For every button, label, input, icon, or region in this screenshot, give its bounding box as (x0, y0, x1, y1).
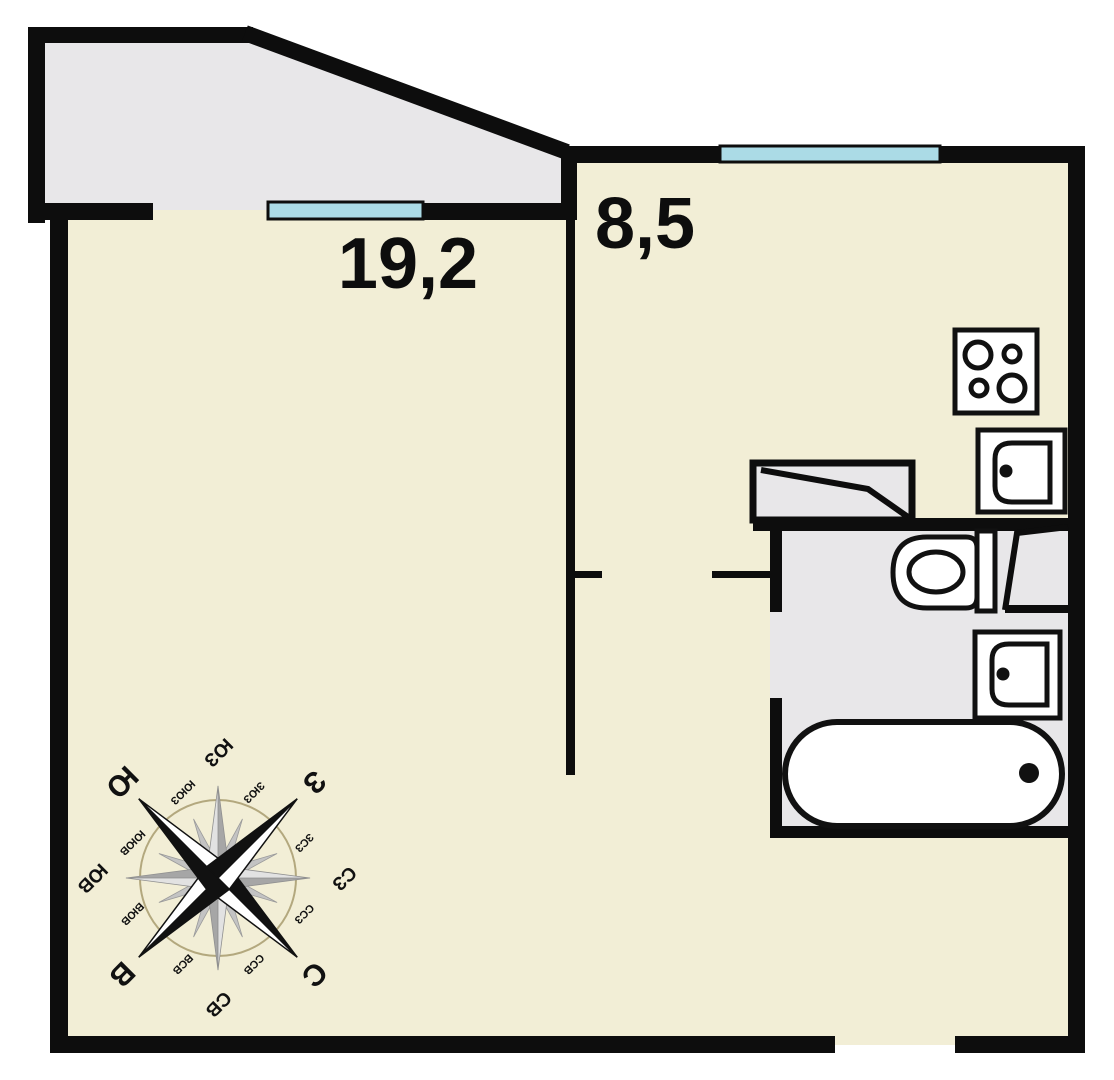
kitchen-window (720, 146, 940, 162)
drain-dot (1019, 763, 1039, 783)
floor-plan-image: 19,2 8,5 (0, 0, 1114, 1080)
burner-large-2 (999, 375, 1025, 401)
left-wall (50, 203, 68, 1053)
burner-large-1 (965, 342, 991, 368)
bottom-wall-left (50, 1036, 835, 1053)
toilet-icon (893, 531, 995, 611)
wc-partition-wall (1005, 605, 1068, 613)
balcony-top-wall (28, 27, 253, 43)
kitchen-area-label: 8,5 (595, 184, 695, 264)
bathroom-sink-icon (975, 632, 1060, 718)
bathroom-left-wall-upper (770, 530, 782, 612)
bathtub-icon (785, 722, 1062, 826)
balcony-left-wall (28, 27, 45, 223)
kitchen-sink-icon (978, 430, 1065, 512)
living-top-wall-right (418, 203, 577, 220)
room-divider-wall (566, 220, 575, 775)
toilet-tank (977, 531, 995, 611)
stove-icon (955, 330, 1037, 413)
bathroom-left-wall-lower (770, 698, 782, 838)
faucet-dot (1000, 465, 1013, 478)
kitchen-door-jamb (575, 571, 602, 578)
bottom-wall-right (955, 1036, 1085, 1053)
living-room-area-label: 19,2 (338, 224, 478, 304)
faucet-dot (997, 668, 1010, 681)
floor-plan-svg: 19,2 8,5 (0, 0, 1114, 1080)
right-wall (1068, 146, 1085, 1053)
toilet-seat (909, 552, 963, 592)
living-room-window (268, 202, 423, 219)
burner-small-1 (1004, 346, 1020, 362)
burner-small-2 (971, 380, 987, 396)
